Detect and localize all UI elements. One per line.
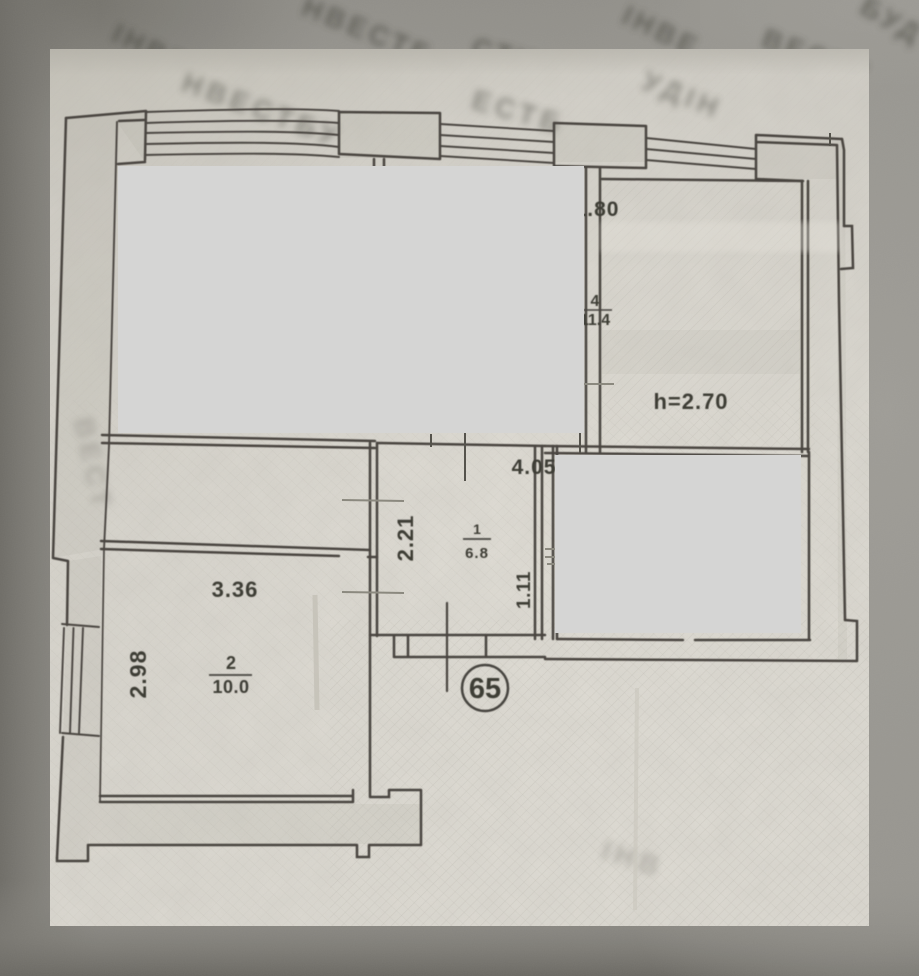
svg-text:2.21: 2.21: [393, 515, 418, 562]
svg-text:10.0: 10.0: [212, 677, 249, 697]
svg-text:4.05: 4.05: [512, 456, 557, 479]
svg-text:3.36: 3.36: [212, 577, 259, 602]
svg-text:1: 1: [473, 521, 481, 537]
svg-text:6.8: 6.8: [465, 545, 489, 562]
svg-text:2: 2: [226, 653, 236, 673]
svg-text:65: 65: [469, 673, 501, 705]
svg-text:2.98: 2.98: [125, 650, 151, 699]
svg-text:h=2.70: h=2.70: [653, 389, 728, 414]
svg-text:11.4: 11.4: [580, 312, 610, 329]
svg-text:4: 4: [591, 293, 600, 310]
svg-text:1.11: 1.11: [514, 571, 535, 609]
